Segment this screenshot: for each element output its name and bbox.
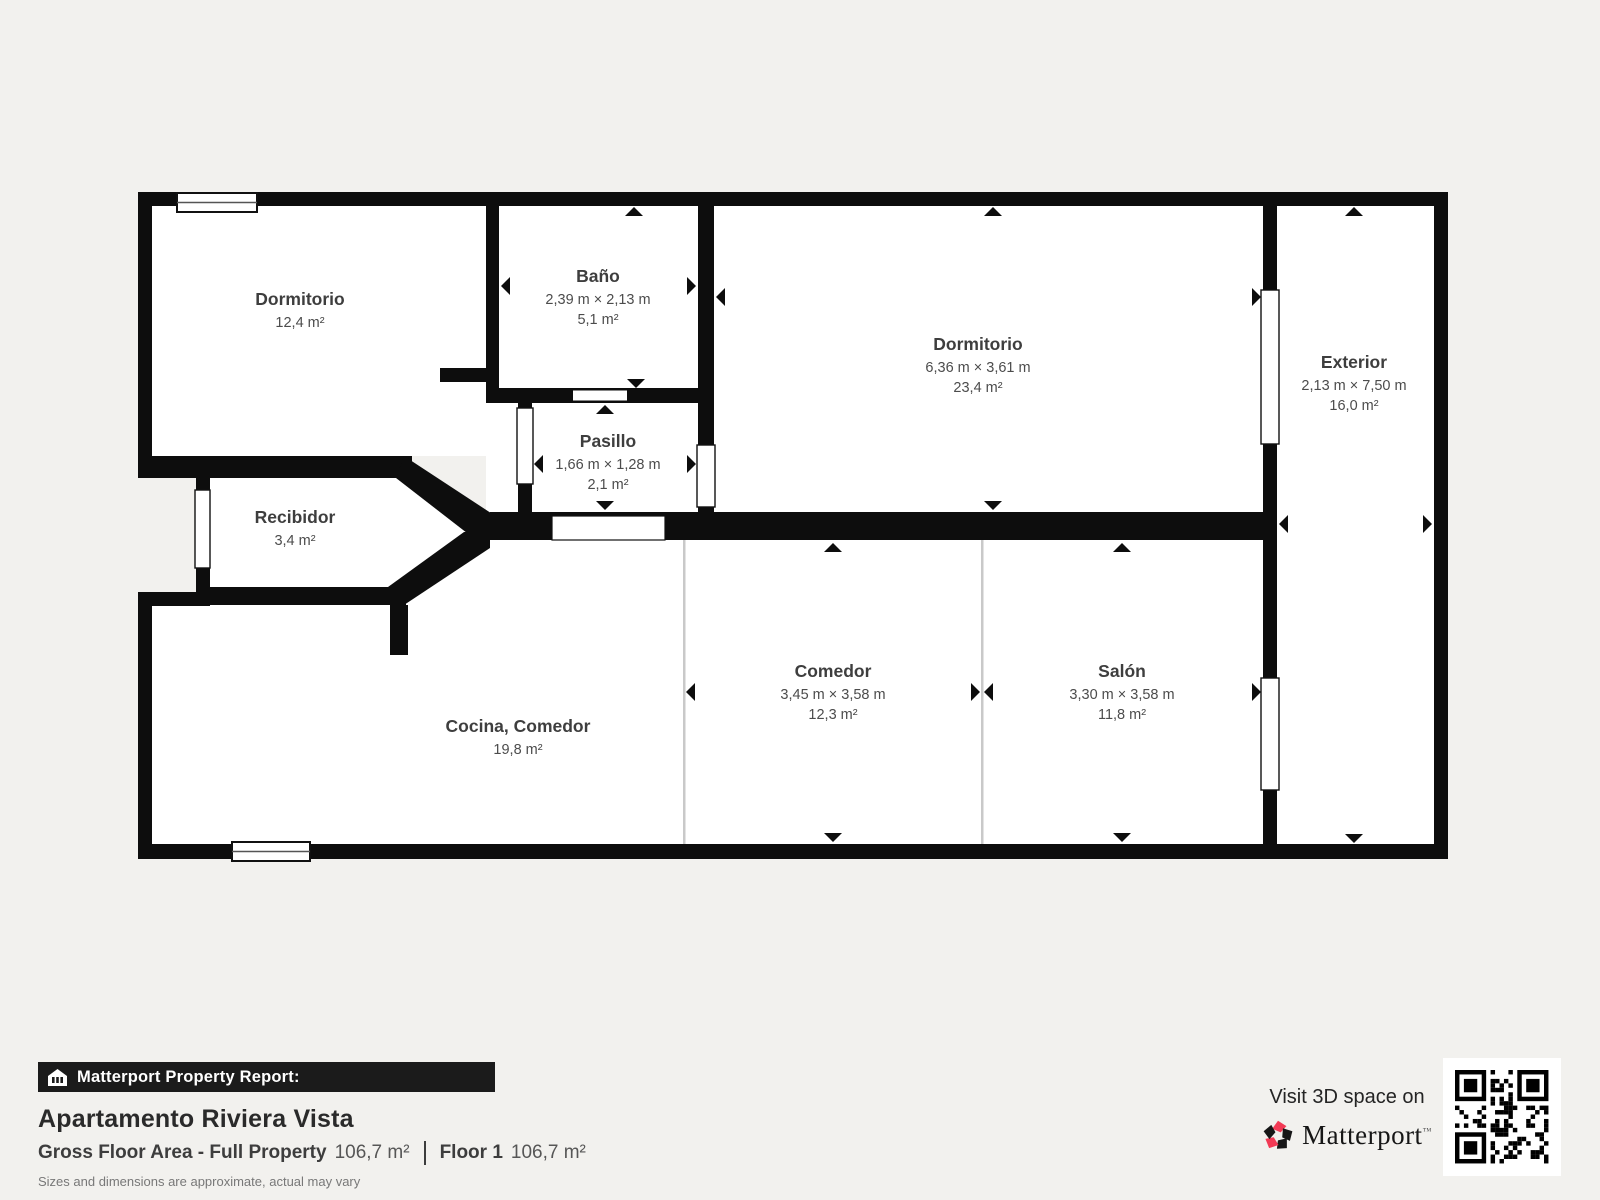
room-area: 12,3 m²	[808, 707, 857, 723]
room-floor-dormitorio1	[152, 206, 486, 456]
room-floor-dormitorio2	[714, 206, 1263, 512]
room-floor-exterior	[1277, 206, 1434, 844]
report-header-bar: Matterport Property Report:	[38, 1062, 495, 1092]
property-title: Apartamento Riviera Vista	[38, 1105, 658, 1134]
floor-label: Floor 1	[440, 1142, 503, 1164]
room-dims: 3,30 m × 3,58 m	[1069, 687, 1174, 703]
matterport-wordmark: Matterport™	[1302, 1120, 1432, 1151]
matterport-logo-icon	[1262, 1118, 1294, 1152]
disclaimer-text: Sizes and dimensions are approximate, ac…	[38, 1174, 658, 1189]
wall-right	[1434, 192, 1448, 859]
wall-left-upper	[138, 192, 152, 478]
door-recibidor	[195, 490, 210, 568]
wall-stub-recibidor	[390, 605, 408, 655]
qr-code	[1443, 1058, 1561, 1176]
door-pasillo-left	[517, 408, 533, 484]
wall-recibidor-top	[138, 456, 412, 478]
wall-left-lower	[138, 592, 152, 859]
gfa-value: 106,7 m²	[335, 1142, 410, 1164]
wall-bano-left	[486, 192, 499, 388]
report-footer: Matterport Property Report: Apartamento …	[38, 1062, 658, 1189]
door-salon-exterior	[1261, 678, 1279, 790]
floor-value: 106,7 m²	[511, 1142, 586, 1164]
door-pasillo-bottom	[552, 516, 665, 540]
wall-bottom	[138, 844, 1448, 859]
room-area: 3,4 m²	[274, 533, 315, 549]
floor-area-summary: Gross Floor Area - Full Property 106,7 m…	[38, 1141, 658, 1165]
house-icon	[48, 1069, 67, 1086]
door-pasillo-right	[697, 445, 715, 507]
window-top-left	[177, 193, 257, 212]
room-area: 2,1 m²	[587, 477, 628, 493]
room-dims: 2,13 m × 7,50 m	[1301, 378, 1406, 394]
report-bar-label: Matterport Property Report:	[77, 1068, 300, 1087]
door-dormitorio2-exterior	[1261, 290, 1279, 444]
floor-plan: Dormitorio 12,4 m² Baño 2,39 m × 2,13 m …	[0, 0, 1600, 1200]
door-bano	[573, 391, 627, 401]
room-label: Exterior	[1321, 352, 1387, 372]
divider-comedor-salon	[981, 540, 984, 844]
wall-stub-dormitorio1	[440, 368, 486, 382]
room-area: 5,1 m²	[577, 312, 618, 328]
visit-3d-cta: Visit 3D space on Matterport™	[1252, 1086, 1442, 1152]
matterport-brand: Matterport™	[1252, 1118, 1442, 1152]
room-label: Dormitorio	[933, 334, 1022, 354]
divider-cocina-comedor	[683, 540, 686, 844]
gfa-label: Gross Floor Area - Full Property	[38, 1142, 327, 1164]
wall-recibidor-bottom	[196, 587, 406, 605]
room-area: 16,0 m²	[1329, 398, 1378, 414]
room-label: Recibidor	[255, 507, 336, 527]
room-label: Dormitorio	[255, 289, 344, 309]
trademark-mark: ™	[1423, 1126, 1432, 1136]
room-label: Cocina, Comedor	[446, 716, 591, 736]
room-label: Pasillo	[580, 431, 636, 451]
window-bottom-left	[232, 842, 310, 861]
room-label: Comedor	[795, 661, 872, 681]
room-dims: 3,45 m × 3,58 m	[780, 687, 885, 703]
room-label: Salón	[1098, 661, 1146, 681]
room-dims: 2,39 m × 2,13 m	[545, 292, 650, 308]
room-area: 11,8 m²	[1098, 707, 1146, 723]
room-area: 19,8 m²	[493, 742, 542, 758]
room-label: Baño	[576, 266, 620, 286]
room-area: 12,4 m²	[275, 315, 324, 331]
summary-divider	[424, 1141, 426, 1165]
room-area: 23,4 m²	[953, 380, 1002, 396]
visit-text: Visit 3D space on	[1252, 1086, 1442, 1109]
wall-top	[138, 192, 1448, 206]
room-dims: 6,36 m × 3,61 m	[925, 360, 1030, 376]
room-dims: 1,66 m × 1,28 m	[555, 457, 660, 473]
